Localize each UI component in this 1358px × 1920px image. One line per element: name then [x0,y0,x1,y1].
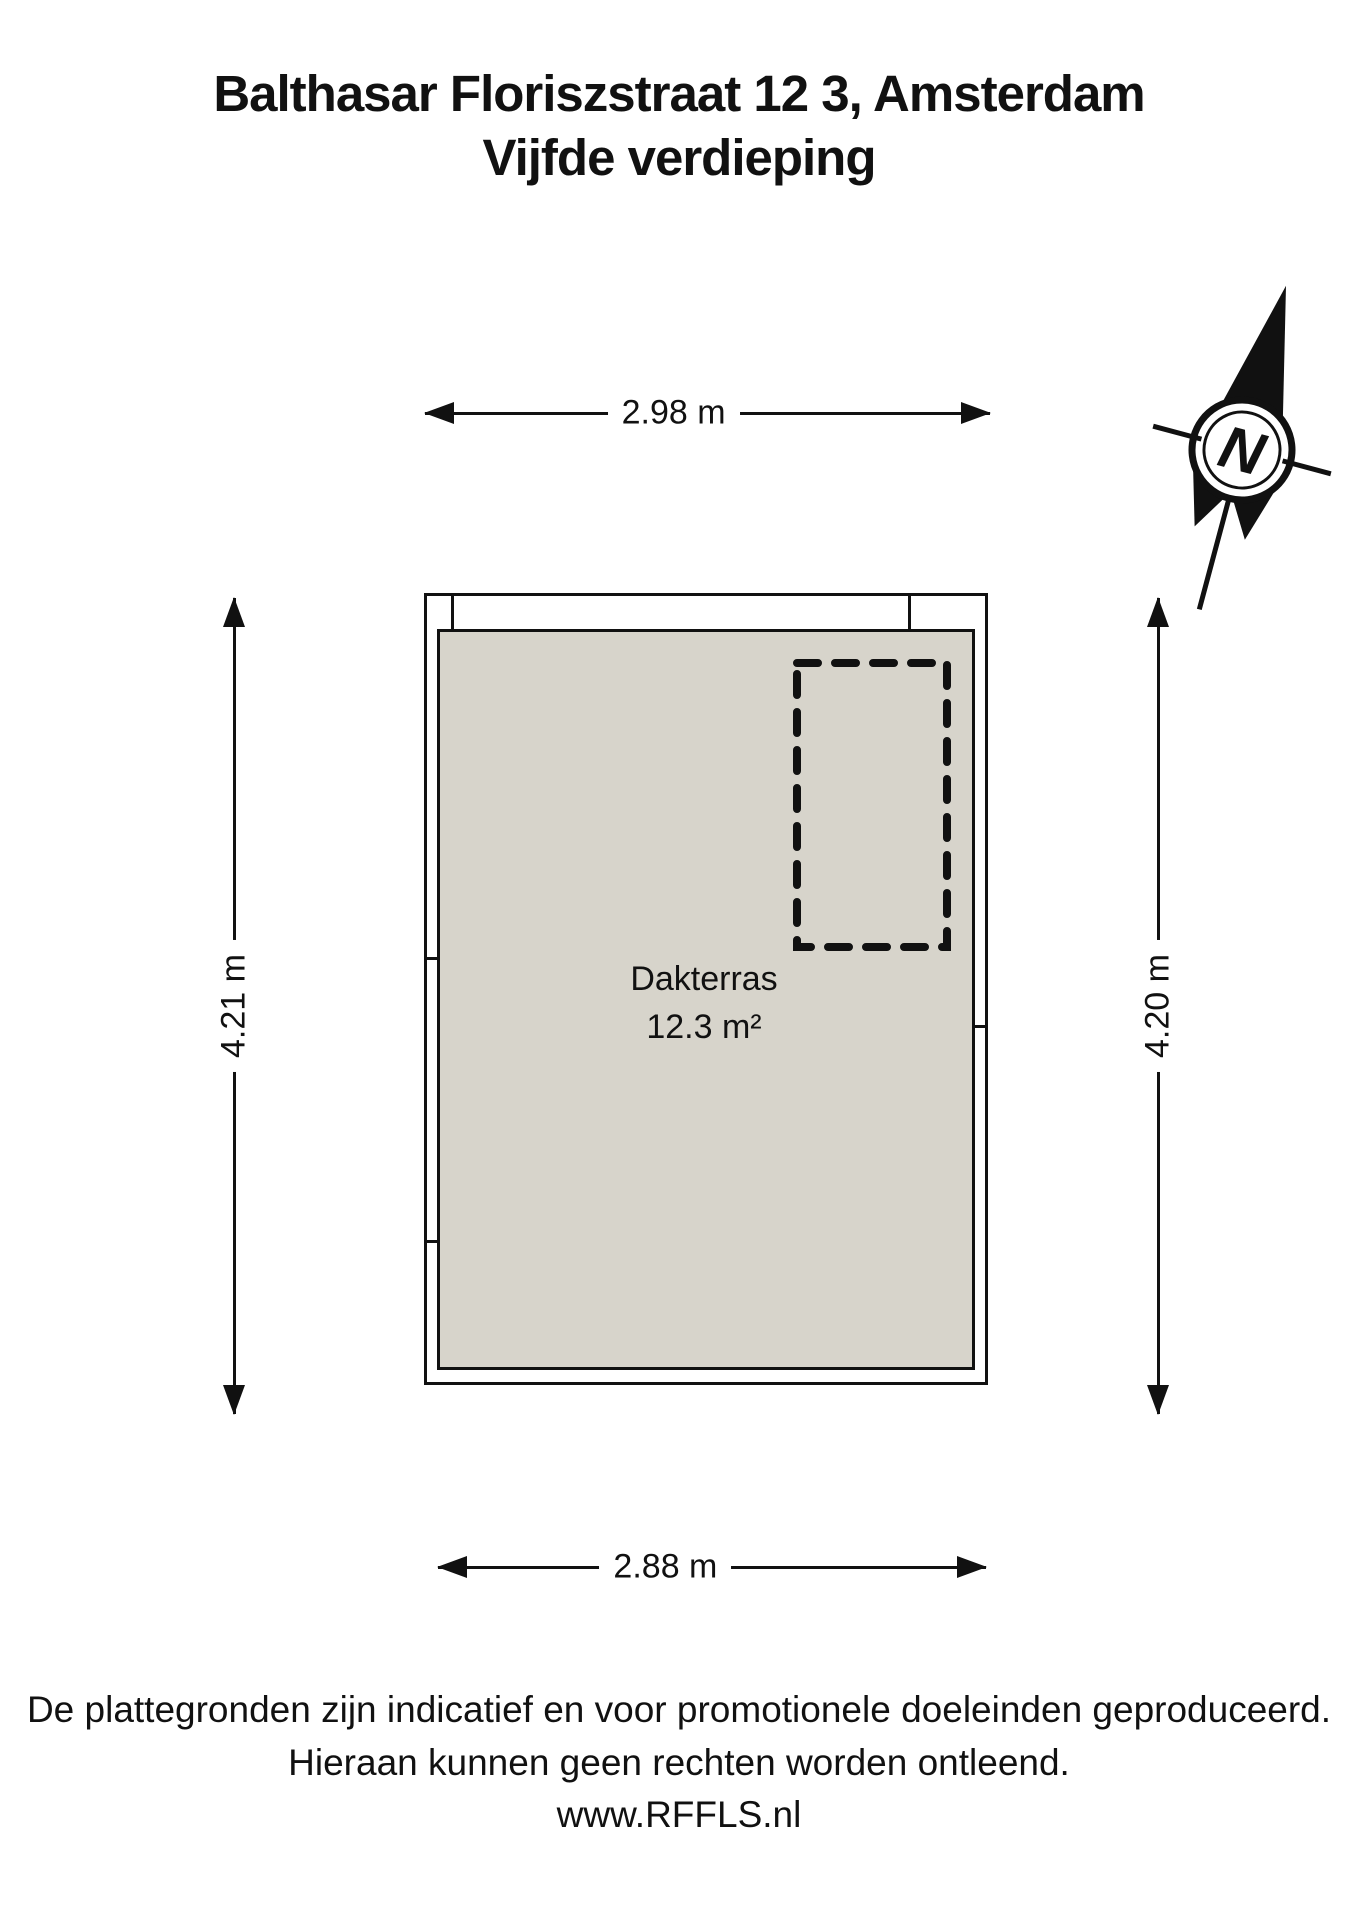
wall-seam [427,1240,437,1243]
page-title: Balthasar Floriszstraat 12 3, Amsterdam … [0,62,1358,191]
dimension-bottom-label: 2.88 m [599,1546,731,1589]
wall-seam [908,596,911,629]
arrow-up-icon [1147,597,1169,627]
title-floor-name: Vijfde verdieping [0,126,1358,190]
arrow-down-icon [223,1385,245,1415]
disclaimer-line-1: De plattegronden zijn indicatief en voor… [0,1684,1358,1737]
dimension-right-label: 4.20 m [1137,940,1180,1072]
footer-disclaimer: De plattegronden zijn indicatief en voor… [0,1684,1358,1842]
arrow-left-icon [424,402,454,424]
website-url: www.RFFLS.nl [0,1789,1358,1842]
title-address: Balthasar Floriszstraat 12 3, Amsterdam [0,62,1358,126]
arrow-left-icon [437,1556,467,1578]
floorplan-page: Balthasar Floriszstraat 12 3, Amsterdam … [0,0,1358,1920]
dashed-roof-structure [789,655,955,955]
wall-seam [451,596,454,629]
wall-seam [975,1025,985,1028]
arrow-up-icon [223,597,245,627]
room-name: Dakterras [504,956,904,1004]
disclaimer-line-2: Hieraan kunnen geen rechten worden ontle… [0,1737,1358,1790]
compass-north-icon: N [1137,250,1347,650]
dimension-left: 4.21 m [220,598,248,1414]
dimension-bottom: 2.88 m [438,1553,986,1581]
room-label: Dakterras 12.3 m² [504,956,904,1051]
dimension-top-label: 2.98 m [608,392,740,435]
arrow-right-icon [957,1556,987,1578]
arrow-down-icon [1147,1385,1169,1415]
dimension-left-label: 4.21 m [213,940,256,1072]
dashed-rect [797,663,947,947]
arrow-right-icon [961,402,991,424]
wall-seam [427,957,437,960]
dimension-right: 4.20 m [1144,598,1172,1414]
room-area: 12.3 m² [504,1004,904,1052]
dimension-top: 2.98 m [425,399,990,427]
